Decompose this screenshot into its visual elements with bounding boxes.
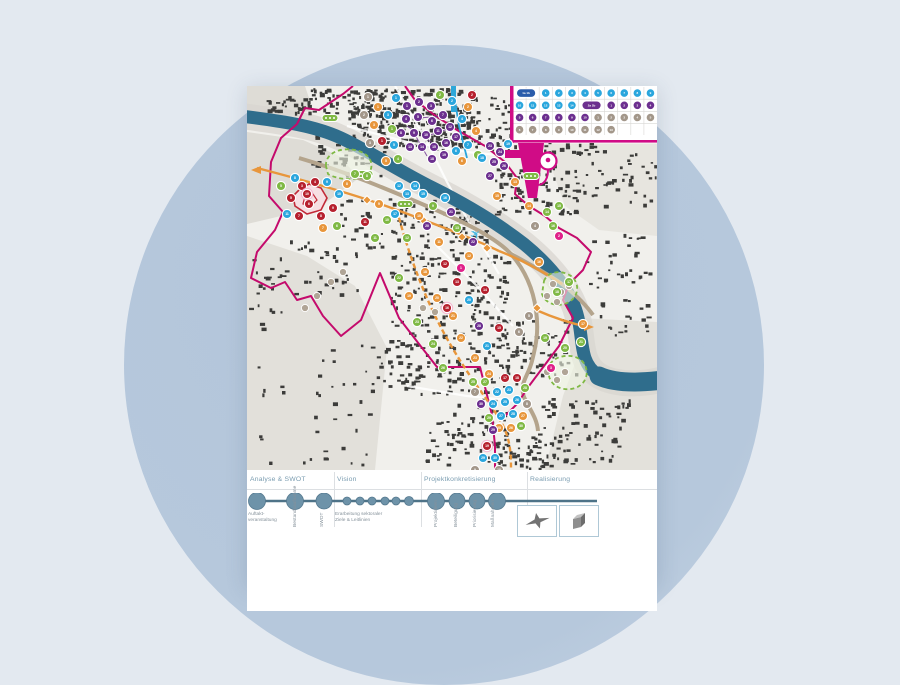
svg-text:13: 13 bbox=[455, 280, 459, 284]
map-badge: 14 bbox=[410, 181, 419, 190]
map-badge: 19 bbox=[439, 150, 448, 159]
map-badge: 10 bbox=[421, 130, 430, 139]
svg-text:17: 17 bbox=[454, 135, 458, 139]
svg-text:7: 7 bbox=[322, 226, 324, 230]
map-badge: 12 bbox=[445, 122, 454, 131]
svg-text:3: 3 bbox=[387, 113, 389, 117]
map-badge: 2 bbox=[463, 102, 472, 111]
map-badge: 8 bbox=[396, 128, 405, 137]
svg-text:15: 15 bbox=[432, 145, 436, 149]
map-badge: 7 bbox=[470, 387, 479, 396]
svg-text:13: 13 bbox=[610, 128, 614, 132]
tree-marker bbox=[339, 268, 346, 275]
map-badge: 7 bbox=[318, 223, 327, 232]
map-badge: 20 bbox=[422, 221, 431, 230]
magenta-band bbox=[505, 150, 543, 158]
svg-text:5: 5 bbox=[385, 159, 387, 163]
svg-text:27: 27 bbox=[488, 174, 492, 178]
svg-text:13: 13 bbox=[513, 180, 517, 184]
svg-text:17: 17 bbox=[503, 376, 507, 380]
timeline-milestone bbox=[356, 497, 364, 505]
svg-text:13: 13 bbox=[557, 103, 561, 107]
map-badge: 14 bbox=[417, 142, 426, 151]
map-badge: 20 bbox=[464, 295, 473, 304]
svg-text:15: 15 bbox=[421, 192, 425, 196]
svg-text:20: 20 bbox=[435, 296, 439, 300]
map-badge: 9 bbox=[374, 199, 383, 208]
svg-text:24: 24 bbox=[487, 372, 491, 376]
svg-text:8: 8 bbox=[400, 131, 402, 135]
phase-rule bbox=[247, 489, 657, 490]
svg-text:10: 10 bbox=[417, 214, 421, 218]
map-badge: 9 bbox=[409, 128, 418, 137]
map-badge: 8 bbox=[522, 399, 531, 408]
map-badge: 19 bbox=[481, 440, 493, 452]
map-badge: 14 bbox=[480, 285, 489, 294]
svg-text:23: 23 bbox=[473, 356, 477, 360]
svg-text:22: 22 bbox=[459, 336, 463, 340]
map-badge: 7 bbox=[350, 169, 359, 178]
map-badge: 1 bbox=[387, 124, 396, 133]
milestone-label-projektideen: Projektideen bbox=[434, 500, 439, 527]
svg-text:8: 8 bbox=[366, 174, 368, 178]
map-badge: 16 bbox=[441, 138, 450, 147]
svg-text:4: 4 bbox=[534, 224, 536, 228]
legend-underline bbox=[510, 140, 657, 143]
svg-text:12: 12 bbox=[443, 262, 447, 266]
map-badge: 3 bbox=[546, 363, 555, 372]
svg-text:22: 22 bbox=[495, 390, 499, 394]
map-badge: 22 bbox=[492, 387, 501, 396]
map-badge: 29 bbox=[488, 425, 497, 434]
svg-text:24: 24 bbox=[491, 402, 495, 406]
map-badge: 4 bbox=[530, 221, 539, 230]
map-badge: 16 bbox=[548, 221, 557, 230]
svg-text:9: 9 bbox=[432, 204, 434, 208]
tree-marker bbox=[301, 304, 308, 311]
map-badge: 6 bbox=[457, 156, 466, 165]
svg-text:9: 9 bbox=[332, 206, 334, 210]
map-badge: 30 bbox=[476, 399, 485, 408]
svg-text:12: 12 bbox=[596, 128, 600, 132]
map-badge: 25 bbox=[489, 157, 498, 166]
realisierung-thumbnail-plane bbox=[517, 505, 557, 537]
milestone-label-massnahmen: Maßnahmen bbox=[491, 500, 496, 527]
svg-text:4: 4 bbox=[405, 117, 407, 121]
map-badge: 6 bbox=[304, 199, 313, 208]
map-badge: 1 bbox=[391, 93, 400, 102]
svg-text:6: 6 bbox=[431, 119, 433, 123]
map-badge: 21 bbox=[446, 207, 455, 216]
svg-text:3: 3 bbox=[550, 366, 552, 370]
map-badge: 12 bbox=[394, 181, 403, 190]
svg-text:19: 19 bbox=[485, 444, 489, 448]
svg-text:3: 3 bbox=[301, 184, 303, 188]
map-badge: 17 bbox=[578, 319, 587, 328]
svg-text:21: 21 bbox=[451, 314, 455, 318]
svg-text:14: 14 bbox=[413, 184, 417, 188]
building-icon bbox=[567, 510, 591, 532]
map-badge: 25 bbox=[468, 377, 477, 386]
svg-text:1: 1 bbox=[381, 139, 383, 143]
svg-text:11: 11 bbox=[363, 220, 367, 224]
svg-text:6: 6 bbox=[461, 159, 463, 163]
map-badge: 23 bbox=[412, 317, 421, 326]
timeline-milestone bbox=[316, 493, 332, 509]
svg-text:19: 19 bbox=[442, 153, 446, 157]
svg-text:16: 16 bbox=[445, 306, 449, 310]
map-badge: 1 bbox=[373, 102, 382, 111]
map-badge: 18 bbox=[420, 267, 429, 276]
map-badge: 25 bbox=[500, 397, 509, 406]
svg-text:8: 8 bbox=[346, 182, 348, 186]
svg-text:17: 17 bbox=[581, 322, 585, 326]
svg-text:15: 15 bbox=[557, 204, 561, 208]
svg-text:10: 10 bbox=[570, 128, 574, 132]
map-badge: 16 bbox=[441, 302, 453, 314]
map-badge: 11 bbox=[282, 209, 291, 218]
map-badge: 10 bbox=[414, 211, 423, 220]
map-badge: 5 bbox=[286, 193, 295, 202]
realisierung-thumbnail-building bbox=[559, 505, 599, 537]
svg-text:8: 8 bbox=[320, 214, 322, 218]
map-badge: 24 bbox=[488, 399, 497, 408]
map-badge: 15 bbox=[429, 142, 438, 151]
svg-text:15: 15 bbox=[497, 326, 501, 330]
map-badge: 21 bbox=[576, 337, 585, 346]
map-badge: 16 bbox=[534, 257, 543, 266]
map-badge: 2 bbox=[435, 90, 444, 99]
svg-text:2: 2 bbox=[451, 99, 453, 103]
svg-text:6: 6 bbox=[518, 330, 520, 334]
svg-text:29: 29 bbox=[487, 416, 491, 420]
map-badge: 4 bbox=[393, 154, 402, 163]
map-badge: 4 bbox=[310, 177, 319, 186]
svg-text:5: 5 bbox=[417, 115, 419, 119]
svg-text:14: 14 bbox=[527, 204, 531, 208]
svg-text:18: 18 bbox=[480, 156, 484, 160]
svg-text:12: 12 bbox=[544, 103, 548, 107]
river-pool bbox=[599, 376, 657, 382]
svg-text:17: 17 bbox=[567, 280, 571, 284]
svg-text:25: 25 bbox=[471, 380, 475, 384]
timeline-milestone bbox=[343, 497, 351, 505]
map-badge: 15 bbox=[494, 323, 503, 332]
map-badge: 24 bbox=[428, 339, 437, 348]
timeline-milestone bbox=[392, 497, 400, 505]
process-timeline: Analyse & SWOT Vision Projektkonkretisie… bbox=[247, 470, 657, 611]
svg-text:23: 23 bbox=[507, 388, 511, 392]
svg-text:30: 30 bbox=[493, 456, 497, 460]
svg-text:19: 19 bbox=[543, 336, 547, 340]
map-badge: 26 bbox=[512, 395, 521, 404]
svg-text:10: 10 bbox=[385, 218, 389, 222]
svg-text:26: 26 bbox=[502, 164, 506, 168]
svg-text:9: 9 bbox=[326, 180, 328, 184]
map-badge: 26 bbox=[506, 423, 515, 432]
map-badge: 7 bbox=[463, 140, 472, 149]
milestone-label-beteiligung: Beteiligung bbox=[454, 503, 459, 527]
svg-text:3: 3 bbox=[373, 123, 375, 127]
svg-text:16: 16 bbox=[444, 141, 448, 145]
svg-text:18: 18 bbox=[430, 157, 434, 161]
svg-text:27: 27 bbox=[499, 414, 503, 418]
map-badge: 12 bbox=[464, 251, 473, 260]
map-badge: 1 bbox=[456, 263, 465, 272]
tree-marker bbox=[431, 308, 438, 315]
map-badge: 20 bbox=[560, 343, 569, 352]
map-badge: 8 bbox=[290, 173, 299, 182]
map-badge: 4 bbox=[401, 114, 410, 123]
phase-label-analyse: Analyse & SWOT bbox=[250, 476, 306, 483]
svg-text:30: 30 bbox=[519, 424, 523, 428]
svg-text:1: 1 bbox=[395, 96, 397, 100]
svg-text:30: 30 bbox=[479, 402, 483, 406]
map-badge: 13 bbox=[452, 223, 461, 232]
svg-text:2a 2b: 2a 2b bbox=[588, 103, 596, 107]
svg-text:14: 14 bbox=[483, 288, 487, 292]
svg-text:28: 28 bbox=[511, 412, 515, 416]
svg-text:25: 25 bbox=[503, 400, 507, 404]
svg-text:17: 17 bbox=[393, 212, 397, 216]
map-badge: 19 bbox=[540, 333, 549, 342]
map-badge: 9 bbox=[428, 201, 437, 210]
svg-text:2: 2 bbox=[439, 93, 441, 97]
svg-text:23: 23 bbox=[415, 320, 419, 324]
map-badge: 3 bbox=[383, 110, 392, 119]
milestone-label-erarbeitung: Erarbeitung sektoraler Ziele & Leitlinie… bbox=[335, 512, 382, 524]
map-badge: 5 bbox=[381, 156, 390, 165]
svg-text:4: 4 bbox=[314, 180, 316, 184]
map-badge: 6 bbox=[427, 116, 436, 125]
svg-text:28: 28 bbox=[523, 386, 527, 390]
svg-text:5: 5 bbox=[290, 196, 292, 200]
svg-text:2: 2 bbox=[467, 105, 469, 109]
page: { "scene": { "bg": "#e3e9f0", "circle": … bbox=[0, 0, 900, 525]
map-badge: 18 bbox=[552, 287, 561, 296]
map-badge: 10 bbox=[382, 215, 391, 224]
map-badge: 2 bbox=[447, 96, 456, 105]
map-badge: 6 bbox=[514, 327, 523, 336]
svg-text:1: 1 bbox=[460, 266, 462, 270]
map-badge: 19 bbox=[503, 139, 512, 148]
tree-marker bbox=[419, 304, 426, 311]
svg-text:12: 12 bbox=[448, 125, 452, 129]
map-badge: 12 bbox=[440, 259, 449, 268]
svg-text:19: 19 bbox=[407, 294, 411, 298]
map-badge: 5 bbox=[389, 140, 398, 149]
svg-text:11: 11 bbox=[285, 212, 289, 216]
svg-text:11: 11 bbox=[437, 240, 441, 244]
svg-text:21: 21 bbox=[449, 210, 453, 214]
legend-grid: 1a 1b12345678910111213142a 2b12345678910… bbox=[510, 86, 657, 143]
map-badge: 17 bbox=[451, 132, 460, 141]
svg-text:25: 25 bbox=[492, 160, 496, 164]
svg-text:1: 1 bbox=[391, 127, 393, 131]
map-badge: 5 bbox=[276, 181, 285, 190]
legend-bar bbox=[510, 86, 514, 143]
svg-text:26: 26 bbox=[441, 366, 445, 370]
map-badge: 10 bbox=[301, 188, 313, 200]
city-map-graphic: 1a 1b12345678910111213142a 2b12345678910… bbox=[247, 86, 657, 470]
svg-text:7: 7 bbox=[298, 214, 300, 218]
map-badge: 27 bbox=[518, 411, 527, 420]
map-badge: 1 bbox=[363, 92, 372, 101]
svg-text:27: 27 bbox=[521, 414, 525, 418]
map-badge: 29 bbox=[478, 453, 487, 462]
svg-text:11: 11 bbox=[531, 103, 535, 107]
map-badge: 15 bbox=[554, 201, 563, 210]
svg-text:5: 5 bbox=[280, 184, 282, 188]
map-badge: 20 bbox=[432, 293, 441, 302]
map-badge: 23 bbox=[485, 141, 494, 150]
map-badge: 9 bbox=[328, 203, 337, 212]
svg-text:12: 12 bbox=[405, 236, 409, 240]
svg-text:20: 20 bbox=[563, 346, 567, 350]
map-badge: 18 bbox=[512, 373, 521, 382]
svg-text:4: 4 bbox=[397, 157, 399, 161]
svg-text:24: 24 bbox=[498, 150, 502, 154]
map-badge: 17 bbox=[390, 209, 399, 218]
tree-marker bbox=[327, 278, 334, 285]
tree-marker bbox=[553, 376, 560, 383]
map-badge: 3 bbox=[369, 120, 378, 129]
svg-text:11: 11 bbox=[373, 236, 377, 240]
map-badge: 5 bbox=[524, 311, 533, 320]
timeline-milestone bbox=[368, 497, 376, 505]
svg-text:21: 21 bbox=[485, 344, 489, 348]
svg-text:20: 20 bbox=[467, 298, 471, 302]
map-badge: 17 bbox=[500, 373, 509, 382]
map-badge: 28 bbox=[508, 409, 517, 418]
tree-marker bbox=[561, 368, 568, 375]
svg-text:10: 10 bbox=[583, 116, 587, 120]
map-badge: 18 bbox=[427, 154, 436, 163]
svg-text:2: 2 bbox=[558, 234, 560, 238]
svg-text:16: 16 bbox=[443, 196, 447, 200]
plane-icon bbox=[523, 510, 551, 532]
svg-text:16: 16 bbox=[551, 224, 555, 228]
map-badge: 13 bbox=[452, 277, 461, 286]
map-badge: 13 bbox=[510, 177, 519, 186]
map-badge: 5 bbox=[413, 112, 422, 121]
svg-text:22: 22 bbox=[397, 276, 401, 280]
map-badge: 8 bbox=[316, 211, 325, 220]
svg-text:14: 14 bbox=[570, 103, 574, 107]
map-badge: 27 bbox=[480, 377, 489, 386]
timeline-milestone bbox=[405, 497, 414, 506]
map-badge: 1 bbox=[402, 101, 411, 110]
map-badge: 22 bbox=[394, 273, 403, 282]
map-badge: 15 bbox=[418, 189, 427, 198]
map-badge: 11 bbox=[433, 126, 442, 135]
map-badge: 6 bbox=[332, 221, 341, 230]
map-badge: 9 bbox=[322, 177, 331, 186]
svg-text:7: 7 bbox=[467, 143, 469, 147]
svg-text:18: 18 bbox=[555, 290, 559, 294]
svg-text:15: 15 bbox=[495, 194, 499, 198]
phase-label-vision: Vision bbox=[337, 476, 357, 483]
map-badge: 13 bbox=[405, 142, 414, 151]
svg-text:3: 3 bbox=[430, 104, 432, 108]
svg-text:7: 7 bbox=[474, 390, 476, 394]
svg-text:10: 10 bbox=[305, 192, 309, 196]
svg-text:9: 9 bbox=[413, 131, 415, 135]
svg-text:21: 21 bbox=[579, 340, 583, 344]
map-badge: 11 bbox=[360, 217, 369, 226]
svg-text:28: 28 bbox=[477, 324, 481, 328]
map-badge: 27 bbox=[496, 411, 505, 420]
svg-text:11: 11 bbox=[583, 128, 587, 132]
map-badge: 22 bbox=[456, 333, 465, 342]
map-badge: 16 bbox=[440, 193, 449, 202]
map-badge: 28 bbox=[520, 383, 529, 392]
svg-text:7: 7 bbox=[354, 172, 356, 176]
phase-label-projekt: Projektkonkretisierung bbox=[424, 476, 496, 483]
phase-label-realisierung: Realisierung bbox=[530, 476, 570, 483]
svg-text:29: 29 bbox=[481, 456, 485, 460]
map-badge: 21 bbox=[482, 341, 491, 350]
svg-text:13: 13 bbox=[405, 192, 409, 196]
milestone-label-priorisierung: Priorisierung bbox=[473, 500, 478, 527]
svg-text:13: 13 bbox=[408, 145, 412, 149]
map-badge: 22 bbox=[468, 237, 477, 246]
svg-text:11: 11 bbox=[436, 129, 440, 133]
map-badge: 27 bbox=[485, 171, 494, 180]
svg-text:1: 1 bbox=[377, 105, 379, 109]
map-badge: 11 bbox=[370, 233, 379, 242]
svg-text:14: 14 bbox=[420, 145, 424, 149]
svg-text:10: 10 bbox=[337, 192, 341, 196]
map-badge: 24 bbox=[495, 147, 504, 156]
svg-text:26: 26 bbox=[515, 398, 519, 402]
svg-text:10: 10 bbox=[424, 133, 428, 137]
map-badge: 4 bbox=[457, 114, 466, 123]
map-card: 1a 1b12345678910111213142a 2b12345678910… bbox=[247, 86, 657, 586]
svg-text:19: 19 bbox=[506, 142, 510, 146]
milestone-label-auftakt: Auftakt- veranstaltung bbox=[248, 512, 277, 524]
svg-text:4: 4 bbox=[475, 129, 477, 133]
map-badge: 15 bbox=[492, 191, 501, 200]
svg-text:5: 5 bbox=[528, 314, 530, 318]
map-badge: 18 bbox=[477, 153, 486, 162]
svg-text:14: 14 bbox=[545, 210, 549, 214]
tree-marker bbox=[313, 292, 320, 299]
map-badge: 7 bbox=[294, 211, 303, 220]
tree-marker bbox=[543, 292, 550, 299]
tree-marker bbox=[549, 280, 556, 287]
map-badge: 7 bbox=[438, 110, 447, 119]
milestone-label-bestandsaufnahme: Bestandsaufnahme bbox=[293, 486, 298, 527]
svg-text:1: 1 bbox=[406, 104, 408, 108]
svg-text:18: 18 bbox=[423, 270, 427, 274]
map-badge: 17 bbox=[564, 277, 573, 286]
svg-text:3: 3 bbox=[369, 141, 371, 145]
map-badge: 10 bbox=[334, 189, 343, 198]
svg-text:10: 10 bbox=[518, 103, 522, 107]
map-badge: 29 bbox=[484, 413, 493, 422]
map-badge: 26 bbox=[499, 161, 508, 170]
map-badge: 6 bbox=[451, 146, 460, 155]
map-badge: 23 bbox=[504, 385, 513, 394]
svg-text:1a 1b: 1a 1b bbox=[522, 91, 530, 95]
map-badge: 23 bbox=[470, 353, 479, 362]
map-badge: 3 bbox=[426, 101, 435, 110]
svg-text:4: 4 bbox=[461, 117, 463, 121]
svg-text:8: 8 bbox=[526, 402, 528, 406]
svg-text:1: 1 bbox=[367, 95, 369, 99]
map-badge: 8 bbox=[342, 179, 351, 188]
